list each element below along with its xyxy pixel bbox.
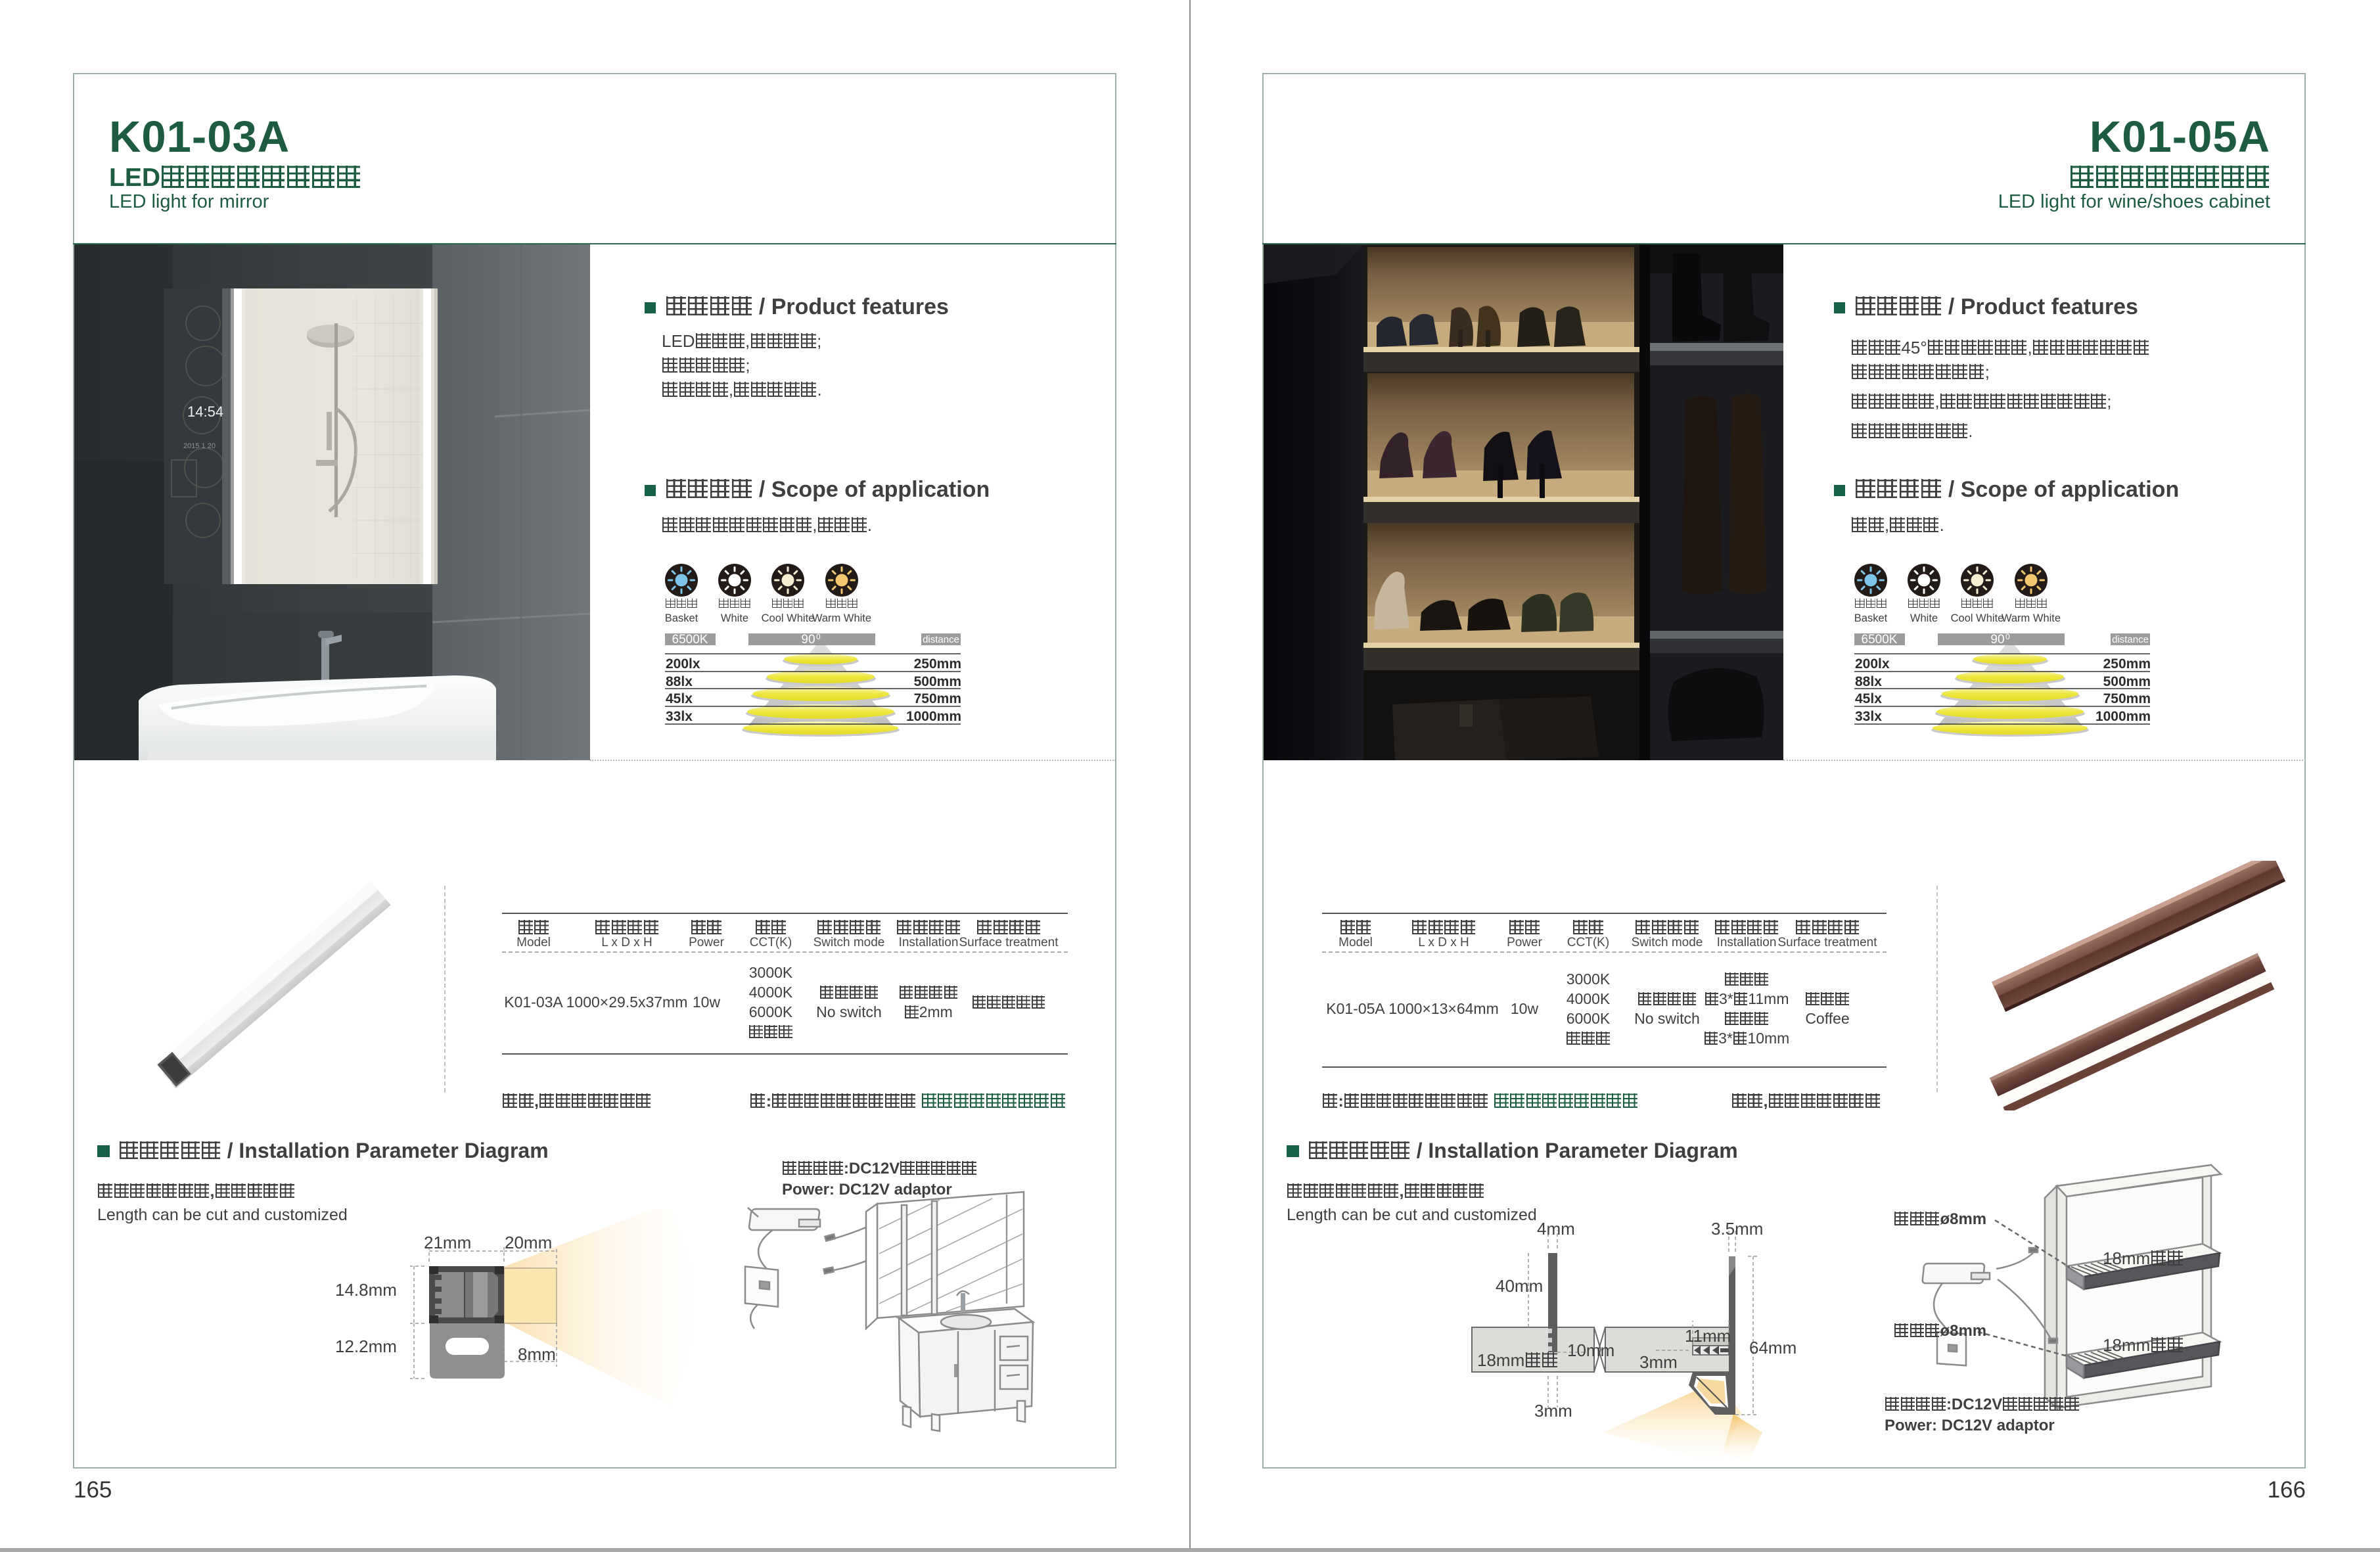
svg-text:90: 90: [801, 633, 815, 647]
svg-text:500mm: 500mm: [914, 674, 961, 689]
svg-text:distance: distance: [2112, 634, 2149, 645]
svg-text:200lx: 200lx: [666, 656, 700, 672]
svg-text:200lx: 200lx: [1855, 656, 1890, 672]
svg-text:1000mm: 1000mm: [2095, 709, 2151, 724]
svg-text:1000mm: 1000mm: [906, 709, 961, 724]
svg-text:250mm: 250mm: [914, 656, 961, 672]
svg-text:33lx: 33lx: [1855, 709, 1882, 724]
svg-text:88lx: 88lx: [666, 674, 693, 689]
svg-text:0: 0: [2005, 632, 2010, 641]
svg-text:14:54: 14:54: [187, 403, 223, 420]
svg-text:6500K: 6500K: [1862, 633, 1898, 647]
svg-text:750mm: 750mm: [2103, 691, 2151, 706]
svg-text:2015 1 20: 2015 1 20: [183, 442, 216, 450]
svg-text:500mm: 500mm: [2103, 674, 2151, 689]
svg-text:45lx: 45lx: [666, 691, 693, 706]
svg-text:6500K: 6500K: [672, 633, 708, 647]
svg-text:88lx: 88lx: [1855, 674, 1882, 689]
svg-text:45lx: 45lx: [1855, 691, 1882, 706]
svg-text:33lx: 33lx: [666, 709, 693, 724]
svg-text:0: 0: [816, 632, 821, 641]
svg-text:750mm: 750mm: [914, 691, 961, 706]
svg-text:distance: distance: [923, 634, 959, 645]
svg-text:250mm: 250mm: [2103, 656, 2151, 672]
svg-text:90: 90: [1990, 633, 2004, 647]
